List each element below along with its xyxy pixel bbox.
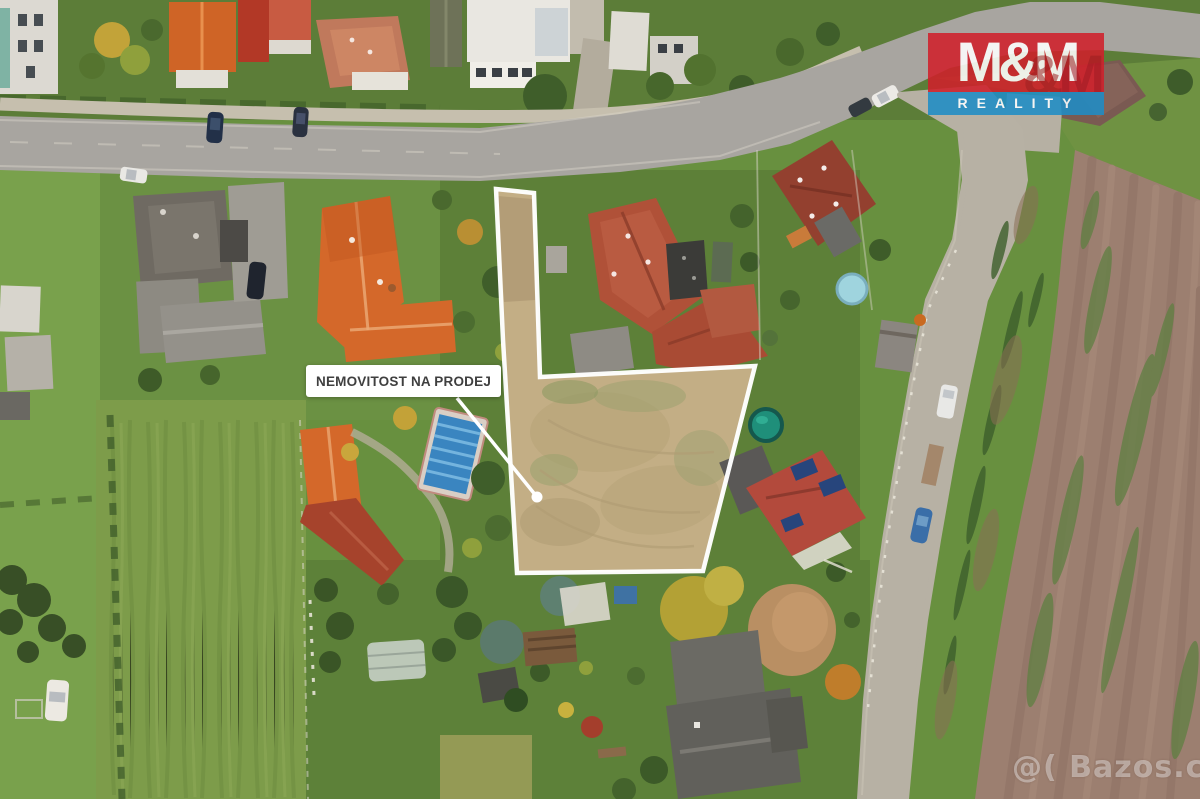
round-pool-blue [837, 274, 867, 304]
parked-car-dark-2 [292, 107, 309, 138]
aerial-scene [0, 0, 1200, 799]
greenhouse [367, 639, 427, 682]
lane-shed [875, 320, 918, 373]
for-sale-label-text: NEMOVITOST NA PRODEJ [316, 374, 491, 389]
for-sale-label: NEMOVITOST NA PRODEJ [306, 365, 501, 397]
bazos-watermark: @( Bazos.cz [1012, 750, 1200, 785]
logo-subtitle: REALITY [928, 92, 1104, 115]
pointer-dot [532, 492, 543, 503]
logo-red-block: M&M &M [928, 33, 1104, 92]
mm-reality-logo: M&M &M REALITY [928, 33, 1104, 115]
logo-main-text: M&M [928, 33, 1104, 90]
round-pool-teal [750, 409, 782, 441]
old-house-roofs [570, 198, 768, 376]
house-salmon-roof-top [316, 16, 410, 90]
parked-white-car [45, 679, 70, 721]
parked-car-dark-1 [206, 111, 224, 143]
house-orange-roof-top [169, 2, 236, 88]
listing-photo: NEMOVITOST NA PRODEJ M&M &M REALITY @( B… [0, 0, 1200, 799]
